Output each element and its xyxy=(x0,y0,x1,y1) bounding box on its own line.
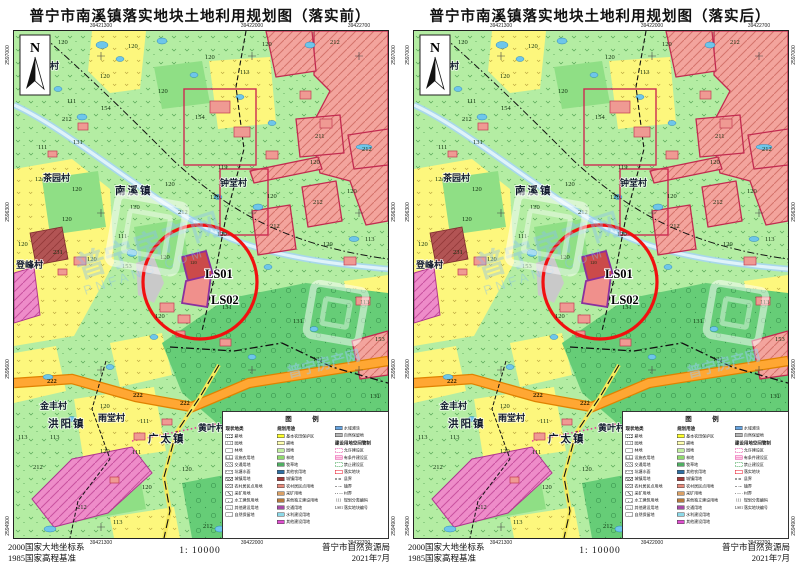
map-label: 113 xyxy=(240,69,250,76)
legend-item: 镇界 xyxy=(735,483,786,490)
grid-coordinate: 2597000 xyxy=(391,35,397,75)
legend-item-label: 设施农用地 xyxy=(235,455,255,461)
legend-codes: 111规划分类编码LS01落实地块编号 xyxy=(735,497,786,511)
legend: 图 例 现状地类 耕地园地林地设施农用地交通用地坑塘水面城镇用地农村居民点用地采… xyxy=(622,411,789,539)
map-label: 113 xyxy=(418,434,428,441)
map-label: 111 xyxy=(38,144,47,151)
map-label: 131 xyxy=(73,139,83,146)
map-label: 113 xyxy=(450,434,460,441)
map-label: 雨堂村 xyxy=(498,412,525,423)
legend-item: 水利建设用地 xyxy=(277,511,335,518)
legend-swatch xyxy=(626,448,634,452)
legend-swatch xyxy=(677,456,685,460)
map-panel: 普宁市南溪镇落实地块土地利用规划图（落实前） xyxy=(0,0,400,574)
legend-item-label: 园地 xyxy=(286,448,294,454)
legend-col2-header: 规划用途 xyxy=(677,425,735,432)
map-label: 212 xyxy=(670,223,680,230)
map-label: 120 xyxy=(205,54,215,61)
map-label: 212 xyxy=(603,523,613,530)
legend-body: 图 例 现状地类 耕地园地林地设施农用地交通用地坑塘水面城镇用地农村居民点用地采… xyxy=(623,412,788,538)
map-label: 茶园村 xyxy=(42,172,70,183)
legend-zones: 允许建设区有条件建设区禁止建设区落实地块 xyxy=(335,447,386,476)
map-label: LS01 xyxy=(605,267,633,281)
map-label: 153 xyxy=(522,263,532,270)
north-arrow: N xyxy=(20,35,50,95)
map-label: 131 xyxy=(313,356,323,363)
map-label: 120 xyxy=(72,186,82,193)
legend-item-label: 林地 xyxy=(235,448,243,454)
legend-item: 林地 xyxy=(626,447,678,454)
legend-col1-items: 耕地园地林地设施农用地交通用地坑塘水面城镇用地农村居民点用地采矿用地水工建筑用地… xyxy=(626,433,678,519)
legend-item-label: 有条件建设区 xyxy=(744,455,768,461)
map-label: 120 xyxy=(723,241,733,248)
legend-col2-items: 基本农田保护区耕地园地林地牧草地其他农用地城镇用地农村居民点用地采矿用地其他独立… xyxy=(277,433,335,526)
grid-coordinate: 2597000 xyxy=(5,35,11,75)
legend-zone-swatch xyxy=(735,470,743,474)
map-label: 120 xyxy=(610,194,620,201)
map-label: 131 xyxy=(293,318,303,325)
legend-item-label: 落实地块编号 xyxy=(744,505,768,511)
grid-coordinate: 2595600 xyxy=(405,349,411,389)
legend-item: 落实地块 xyxy=(335,468,386,475)
map-label: 120 xyxy=(530,204,540,211)
legend-item-label: 水域滩涂 xyxy=(344,425,360,431)
legend-zone-swatch xyxy=(335,463,343,467)
legend-item: 牧草地 xyxy=(677,461,735,468)
legend-swatch xyxy=(277,520,285,524)
map-label: 131 xyxy=(693,318,703,325)
map-label: 120 xyxy=(500,73,510,80)
legend-item-label: 采矿用地 xyxy=(635,491,651,497)
legend-swatch xyxy=(626,456,634,460)
legend-item: 城镇用地 xyxy=(277,475,335,482)
legend-swatch xyxy=(677,441,685,445)
legend-zone-swatch xyxy=(335,448,343,452)
map-label: 120 xyxy=(347,188,357,195)
legend-item-label: 耕地 xyxy=(635,433,643,439)
grid-coordinate: 39422000 xyxy=(641,23,663,29)
grid-coordinate: 2595600 xyxy=(791,349,797,389)
legend-swatch xyxy=(226,477,234,481)
map-label: 212 xyxy=(33,464,43,471)
legend-swatch xyxy=(626,470,634,474)
legend-zone-swatch xyxy=(735,448,743,452)
map-label: 212 xyxy=(713,199,723,206)
map-label: 120 xyxy=(182,466,192,473)
map-label: 212 xyxy=(313,199,323,206)
legend-item-label: 采矿用地 xyxy=(686,491,702,497)
legend-item: 交通用地 xyxy=(626,461,678,468)
legend-swatch xyxy=(226,491,234,495)
map-label: LS01 xyxy=(205,267,233,281)
legend-swatch xyxy=(226,498,234,502)
map-label: 154 xyxy=(101,105,112,112)
map-label: 113 xyxy=(218,164,228,171)
legend-boundary-line xyxy=(335,491,343,495)
legend-item-label: 耕地 xyxy=(235,433,243,439)
north-arrow: N xyxy=(420,35,450,95)
agency-note: 普宁市自然资源局 2021年7月 xyxy=(722,542,790,565)
map-label: 111 xyxy=(140,418,149,425)
legend-swatch xyxy=(626,441,634,445)
legend-code-key: 111 xyxy=(735,498,743,503)
map-label: 120 xyxy=(100,73,110,80)
legend-item: 耕地 xyxy=(626,433,678,440)
legend-item: 其他独立建设用地 xyxy=(277,497,335,504)
map-label: 120 xyxy=(155,313,165,320)
legend-item-label: 农村居民点用地 xyxy=(286,483,314,489)
map-label: 120 xyxy=(100,448,110,455)
legend-swatch xyxy=(277,434,285,438)
map-label: 120 xyxy=(590,260,598,265)
map-label: 洪阳镇 xyxy=(48,417,86,430)
legend-item-label: 城镇用地 xyxy=(635,476,651,482)
legend-item-label: 城镇用地 xyxy=(286,476,302,482)
map-label: 113 xyxy=(640,69,650,76)
map-label: 231 xyxy=(453,249,463,256)
map-label: 南溪镇 xyxy=(515,184,553,197)
map-label: 120 xyxy=(130,204,140,211)
legend-item-label: 县界 xyxy=(344,476,352,482)
legend-col1-header: 现状地类 xyxy=(226,425,278,432)
legend-item-label: 交通用地 xyxy=(286,505,302,511)
map-label: 120 xyxy=(190,260,198,265)
legend-item-label: 采矿用地 xyxy=(286,491,302,497)
legend-item: 林地 xyxy=(677,454,735,461)
legend-item-label: 牧草地 xyxy=(686,462,698,468)
legend-item-label: 禁止建设区 xyxy=(744,462,764,468)
map-title: 普宁市南溪镇落实地块土地利用规划图（落实前） xyxy=(0,5,400,26)
legend-col2-items: 基本农田保护区耕地园地林地牧草地其他农用地城镇用地农村居民点用地采矿用地其他独立… xyxy=(677,433,735,526)
map-label: 212 xyxy=(477,504,487,511)
legend-swatch xyxy=(277,513,285,517)
map-label: 111 xyxy=(438,144,447,151)
legend-col-current: 现状地类 耕地园地林地设施农用地交通用地坑塘水面城镇用地农村居民点用地采矿用地水… xyxy=(626,425,678,526)
legend-boundary-line xyxy=(735,491,743,495)
grid-coordinate: 39421300 xyxy=(90,23,112,29)
legend-item-label: 牧草地 xyxy=(286,462,298,468)
legend-swatch xyxy=(226,434,234,438)
map-label: 212 xyxy=(203,523,213,530)
legend-item: 园地 xyxy=(677,447,735,454)
datum-note: 2000国家大地坐标系 1985国家高程基准 xyxy=(408,542,485,565)
grid-coordinate: 2596300 xyxy=(5,192,11,232)
legend-item: 耕地 xyxy=(226,433,278,440)
legend-swatch xyxy=(677,434,685,438)
legend-codes: 111规划分类编码LS01落实地块编号 xyxy=(335,497,386,511)
legend-swatch xyxy=(226,470,234,474)
legend-item-label: 有条件建设区 xyxy=(344,455,368,461)
map-label: 茶园村 xyxy=(442,172,470,183)
map-label: 120 xyxy=(560,254,570,261)
legend-boundary-line xyxy=(735,484,743,488)
map-label: 120 xyxy=(18,241,28,248)
legend-item-label: 自然保留地 xyxy=(744,432,764,438)
legend-col3-top: 水域滩涂自然保留地 xyxy=(735,425,786,439)
legend-swatch xyxy=(226,506,234,510)
map-label: 钟堂村 xyxy=(220,177,247,188)
map-label: 120 xyxy=(472,186,482,193)
legend-item: 牧草地 xyxy=(277,461,335,468)
legend-item-label: 其他建设用地 xyxy=(635,505,659,511)
map-label: 120 xyxy=(582,466,592,473)
legend-item-label: 设施农用地 xyxy=(635,455,655,461)
legend-item-label: 水工建筑用地 xyxy=(635,498,659,504)
legend-item: 坑塘水面 xyxy=(226,468,278,475)
legend-item-label: 交通用地 xyxy=(635,462,651,468)
map-label: 154 xyxy=(501,105,512,112)
legend-item: 水工建筑用地 xyxy=(226,497,278,504)
legend-item: 自然保留地 xyxy=(226,511,278,518)
grid-coordinate: 2596300 xyxy=(405,192,411,232)
legend-zone-swatch xyxy=(735,456,743,460)
legend-swatch xyxy=(677,470,685,474)
legend-swatch xyxy=(677,448,685,452)
map-label: 120 xyxy=(462,216,472,223)
map-footer: 2000国家大地坐标系 1985国家高程基准 1: 10000 普宁市自然资源局… xyxy=(0,540,400,574)
grid-coordinate: 2595600 xyxy=(391,349,397,389)
legend-item-label: 林地 xyxy=(286,455,294,461)
legend-item-label: 其他建设用地 xyxy=(235,505,259,511)
map-label: 113 xyxy=(765,236,775,243)
legend-item-label: 园地 xyxy=(235,440,243,446)
agency-note: 普宁市自然资源局 2021年7月 xyxy=(322,542,390,565)
legend-item-label: 水利建设用地 xyxy=(686,512,710,518)
legend-item: 农村居民点用地 xyxy=(277,483,335,490)
legend-swatch xyxy=(677,477,685,481)
legend-zone-swatch xyxy=(335,456,343,460)
legend-col3-top: 水域滩涂自然保留地 xyxy=(335,425,386,439)
legend-item-label: 林地 xyxy=(686,455,694,461)
map-label: 113 xyxy=(50,434,60,441)
legend-item: 其他建设用地 xyxy=(626,504,678,511)
legend-item: 园地 xyxy=(226,440,278,447)
legend-item: 坑塘水面 xyxy=(626,468,678,475)
map-label: 113 xyxy=(360,299,370,306)
legend-item: 有条件建设区 xyxy=(735,454,786,461)
legend-item-label: 禁止建设区 xyxy=(344,462,364,468)
legend-item: 交通用地 xyxy=(226,461,278,468)
map-label: 212 xyxy=(730,39,740,46)
legend-item-label: 水工建筑用地 xyxy=(235,498,259,504)
grid-coordinate: 2597000 xyxy=(405,35,411,75)
legend-item: 采矿用地 xyxy=(626,490,678,497)
legend-col3-header: 建设用地空间管制 xyxy=(735,439,786,446)
legend-item: 耕地 xyxy=(677,440,735,447)
legend-item-label: 村界 xyxy=(344,491,352,497)
legend-swatch xyxy=(277,456,285,460)
legend-item-label: 基本农田保护区 xyxy=(286,433,314,439)
map-label: 111 xyxy=(118,233,127,240)
legend-swatch xyxy=(277,448,285,452)
map-label: 212 xyxy=(62,116,72,123)
map-label: 212 xyxy=(578,209,588,216)
map-label: 120 xyxy=(62,216,72,223)
map-label: 登峰村 xyxy=(415,259,443,270)
legend-swatch xyxy=(626,498,634,502)
map-label: 211 xyxy=(315,133,325,140)
map-label: 131 xyxy=(770,393,780,400)
map-label: 113 xyxy=(18,434,28,441)
legend-swatch xyxy=(735,426,743,430)
legend-item-label: 耕地 xyxy=(686,440,694,446)
legend-swatch xyxy=(226,456,234,460)
legend-item-label: 落实地块 xyxy=(344,469,360,475)
map-footer: 2000国家大地坐标系 1985国家高程基准 1: 10000 普宁市自然资源局… xyxy=(400,540,800,574)
map-label: 231 xyxy=(53,249,63,256)
map-label: 212 xyxy=(462,116,472,123)
legend-item: 基本农田保护区 xyxy=(277,433,335,440)
legend-item-label: 其他建设用地 xyxy=(686,519,710,525)
map-label: 120 xyxy=(487,256,497,263)
map-label: 南溪镇 xyxy=(115,184,153,197)
map-label: 120 xyxy=(542,484,552,491)
legend: 图 例 现状地类 耕地园地林地设施农用地交通用地坑塘水面城镇用地农村居民点用地采… xyxy=(222,411,389,539)
legend-item-label: 镇界 xyxy=(744,483,752,489)
legend-item-label: 水域滩涂 xyxy=(744,425,760,431)
map-label: 120 xyxy=(500,403,510,410)
legend-item: 禁止建设区 xyxy=(335,461,386,468)
legend-item: 允许建设区 xyxy=(735,447,786,454)
legend-swatch xyxy=(735,433,743,437)
grid-coordinate: 39421300 xyxy=(490,23,512,29)
legend-item: 其他建设用地 xyxy=(226,504,278,511)
map-label: 120 xyxy=(310,159,320,166)
legend-swatch xyxy=(226,484,234,488)
map-label: 212 xyxy=(77,504,87,511)
map-label: 120 xyxy=(565,181,575,188)
map-label: 153 xyxy=(122,263,132,270)
legend-item-label: 规划分类编码 xyxy=(744,498,768,504)
legend-item: 其他农用地 xyxy=(277,468,335,475)
legend-item-label: 自然保留地 xyxy=(635,512,655,518)
legend-item: 镇界 xyxy=(335,483,386,490)
legend-swatch xyxy=(626,491,634,495)
legend-swatch xyxy=(277,477,285,481)
legend-title: 图 例 xyxy=(226,414,386,424)
legend-col-control: 水域滩涂自然保留地 建设用地空间管制 允许建设区有条件建设区禁止建设区落实地块 … xyxy=(735,425,786,526)
map-label: 120 xyxy=(267,193,277,200)
map-title: 普宁市南溪镇落实地块土地利用规划图（落实后） xyxy=(400,5,800,26)
map-label: 111 xyxy=(518,233,527,240)
map-label: 120 xyxy=(500,448,510,455)
legend-item-label: 镇界 xyxy=(344,483,352,489)
legend-boundaries: 县界镇界村界 xyxy=(735,475,786,496)
legend-swatch xyxy=(335,426,343,430)
map-label: 113 xyxy=(618,164,628,171)
legend-col-current: 现状地类 耕地园地林地设施农用地交通用地坑塘水面城镇用地农村居民点用地采矿用地水… xyxy=(226,425,278,526)
legend-zone-swatch xyxy=(335,470,343,474)
legend-item: 林地 xyxy=(226,447,278,454)
legend-swatch xyxy=(277,470,285,474)
map-label: 120 xyxy=(128,43,138,50)
legend-item: 落实地块 xyxy=(735,468,786,475)
legend-item: 城镇用地 xyxy=(226,475,278,482)
map-wrap: 1201201201202121131201201111542121111311… xyxy=(413,30,789,539)
legend-item-label: 水利建设用地 xyxy=(286,512,310,518)
map-label: 113 xyxy=(113,519,123,526)
map-label: 111 xyxy=(67,98,76,105)
map-label: 212 xyxy=(433,464,443,471)
legend-item-label: 坑塘水面 xyxy=(635,469,651,475)
map-label: 金丰村 xyxy=(439,400,467,411)
map-wrap: 1201201201202121131201201111542121111311… xyxy=(13,30,389,539)
map-label: 120 xyxy=(617,231,627,238)
legend-code-key: LS01 xyxy=(335,505,343,510)
legend-item: 水利建设用地 xyxy=(677,511,735,518)
legend-swatch xyxy=(626,513,634,517)
map-panel: 普宁市南溪镇落实地块土地利用规划图（落实后） xyxy=(400,0,800,574)
legend-item-label: 其他农用地 xyxy=(286,469,306,475)
map-label: 222 xyxy=(180,400,190,407)
map-label: 222 xyxy=(447,378,457,385)
map-label: 153 xyxy=(775,336,785,343)
legend-swatch xyxy=(277,441,285,445)
legend-body: 图 例 现状地类 耕地园地林地设施农用地交通用地坑塘水面城镇用地农村居民点用地采… xyxy=(223,412,388,538)
legend-item: 园地 xyxy=(626,440,678,447)
map-label: 111 xyxy=(532,449,541,456)
map-label: 111 xyxy=(132,449,141,456)
map-label: 154 xyxy=(595,114,606,121)
legend-swatch xyxy=(277,498,285,502)
legend-item-label: 坑塘水面 xyxy=(235,469,251,475)
map-label: 120 xyxy=(142,484,152,491)
map-label: 222 xyxy=(580,400,590,407)
map-label: 113 xyxy=(760,299,770,306)
map-label: 120 xyxy=(662,41,672,48)
legend-item-label: 其他建设用地 xyxy=(286,519,310,525)
map-label: 153 xyxy=(375,336,385,343)
map-label: 120 xyxy=(58,39,68,46)
map-label: 钟堂村 xyxy=(620,177,647,188)
map-label: 120 xyxy=(323,241,333,248)
legend-swatch xyxy=(626,463,634,467)
grid-coordinate: 2596300 xyxy=(791,192,797,232)
legend-item-label: 基本农田保护区 xyxy=(686,433,714,439)
legend-col3-header: 建设用地空间管制 xyxy=(335,439,386,446)
legend-item: 允许建设区 xyxy=(335,447,386,454)
map-label: 120 xyxy=(458,39,468,46)
map-label: 212 xyxy=(362,146,372,153)
legend-col-planned: 规划用途 基本农田保护区耕地园地林地牧草地其他农用地城镇用地农村居民点用地采矿用… xyxy=(277,425,335,526)
svg-text:N: N xyxy=(430,41,440,56)
legend-swatch xyxy=(277,506,285,510)
map-label: 登峰村 xyxy=(15,259,43,270)
map-label: 120 xyxy=(262,41,272,48)
legend-item-label: 允许建设区 xyxy=(744,448,764,454)
map-label: 154 xyxy=(195,114,206,121)
legend-item: 林地 xyxy=(277,454,335,461)
legend-item-label: 其他独立建设用地 xyxy=(686,498,718,504)
map-label: 120 xyxy=(158,88,168,95)
map-label: 120 xyxy=(605,54,615,61)
scale-label: 1: 10000 xyxy=(579,546,621,556)
legend-boundary-line xyxy=(335,484,343,488)
legend-item: 园地 xyxy=(277,447,335,454)
legend-item-label: 允许建设区 xyxy=(344,448,364,454)
map-label: LS02 xyxy=(611,293,639,307)
legend-item-label: 耕地 xyxy=(286,440,294,446)
legend-item: 有条件建设区 xyxy=(335,454,386,461)
legend-item-label: 城镇用地 xyxy=(686,476,702,482)
legend-item-label: 农村居民点用地 xyxy=(235,483,263,489)
map-label: 120 xyxy=(210,194,220,201)
map-label: 120 xyxy=(418,241,428,248)
legend-code-key: LS01 xyxy=(735,505,743,510)
legend-swatch xyxy=(335,433,343,437)
legend-item-label: 农村居民点用地 xyxy=(635,483,663,489)
map-label: 120 xyxy=(100,403,110,410)
